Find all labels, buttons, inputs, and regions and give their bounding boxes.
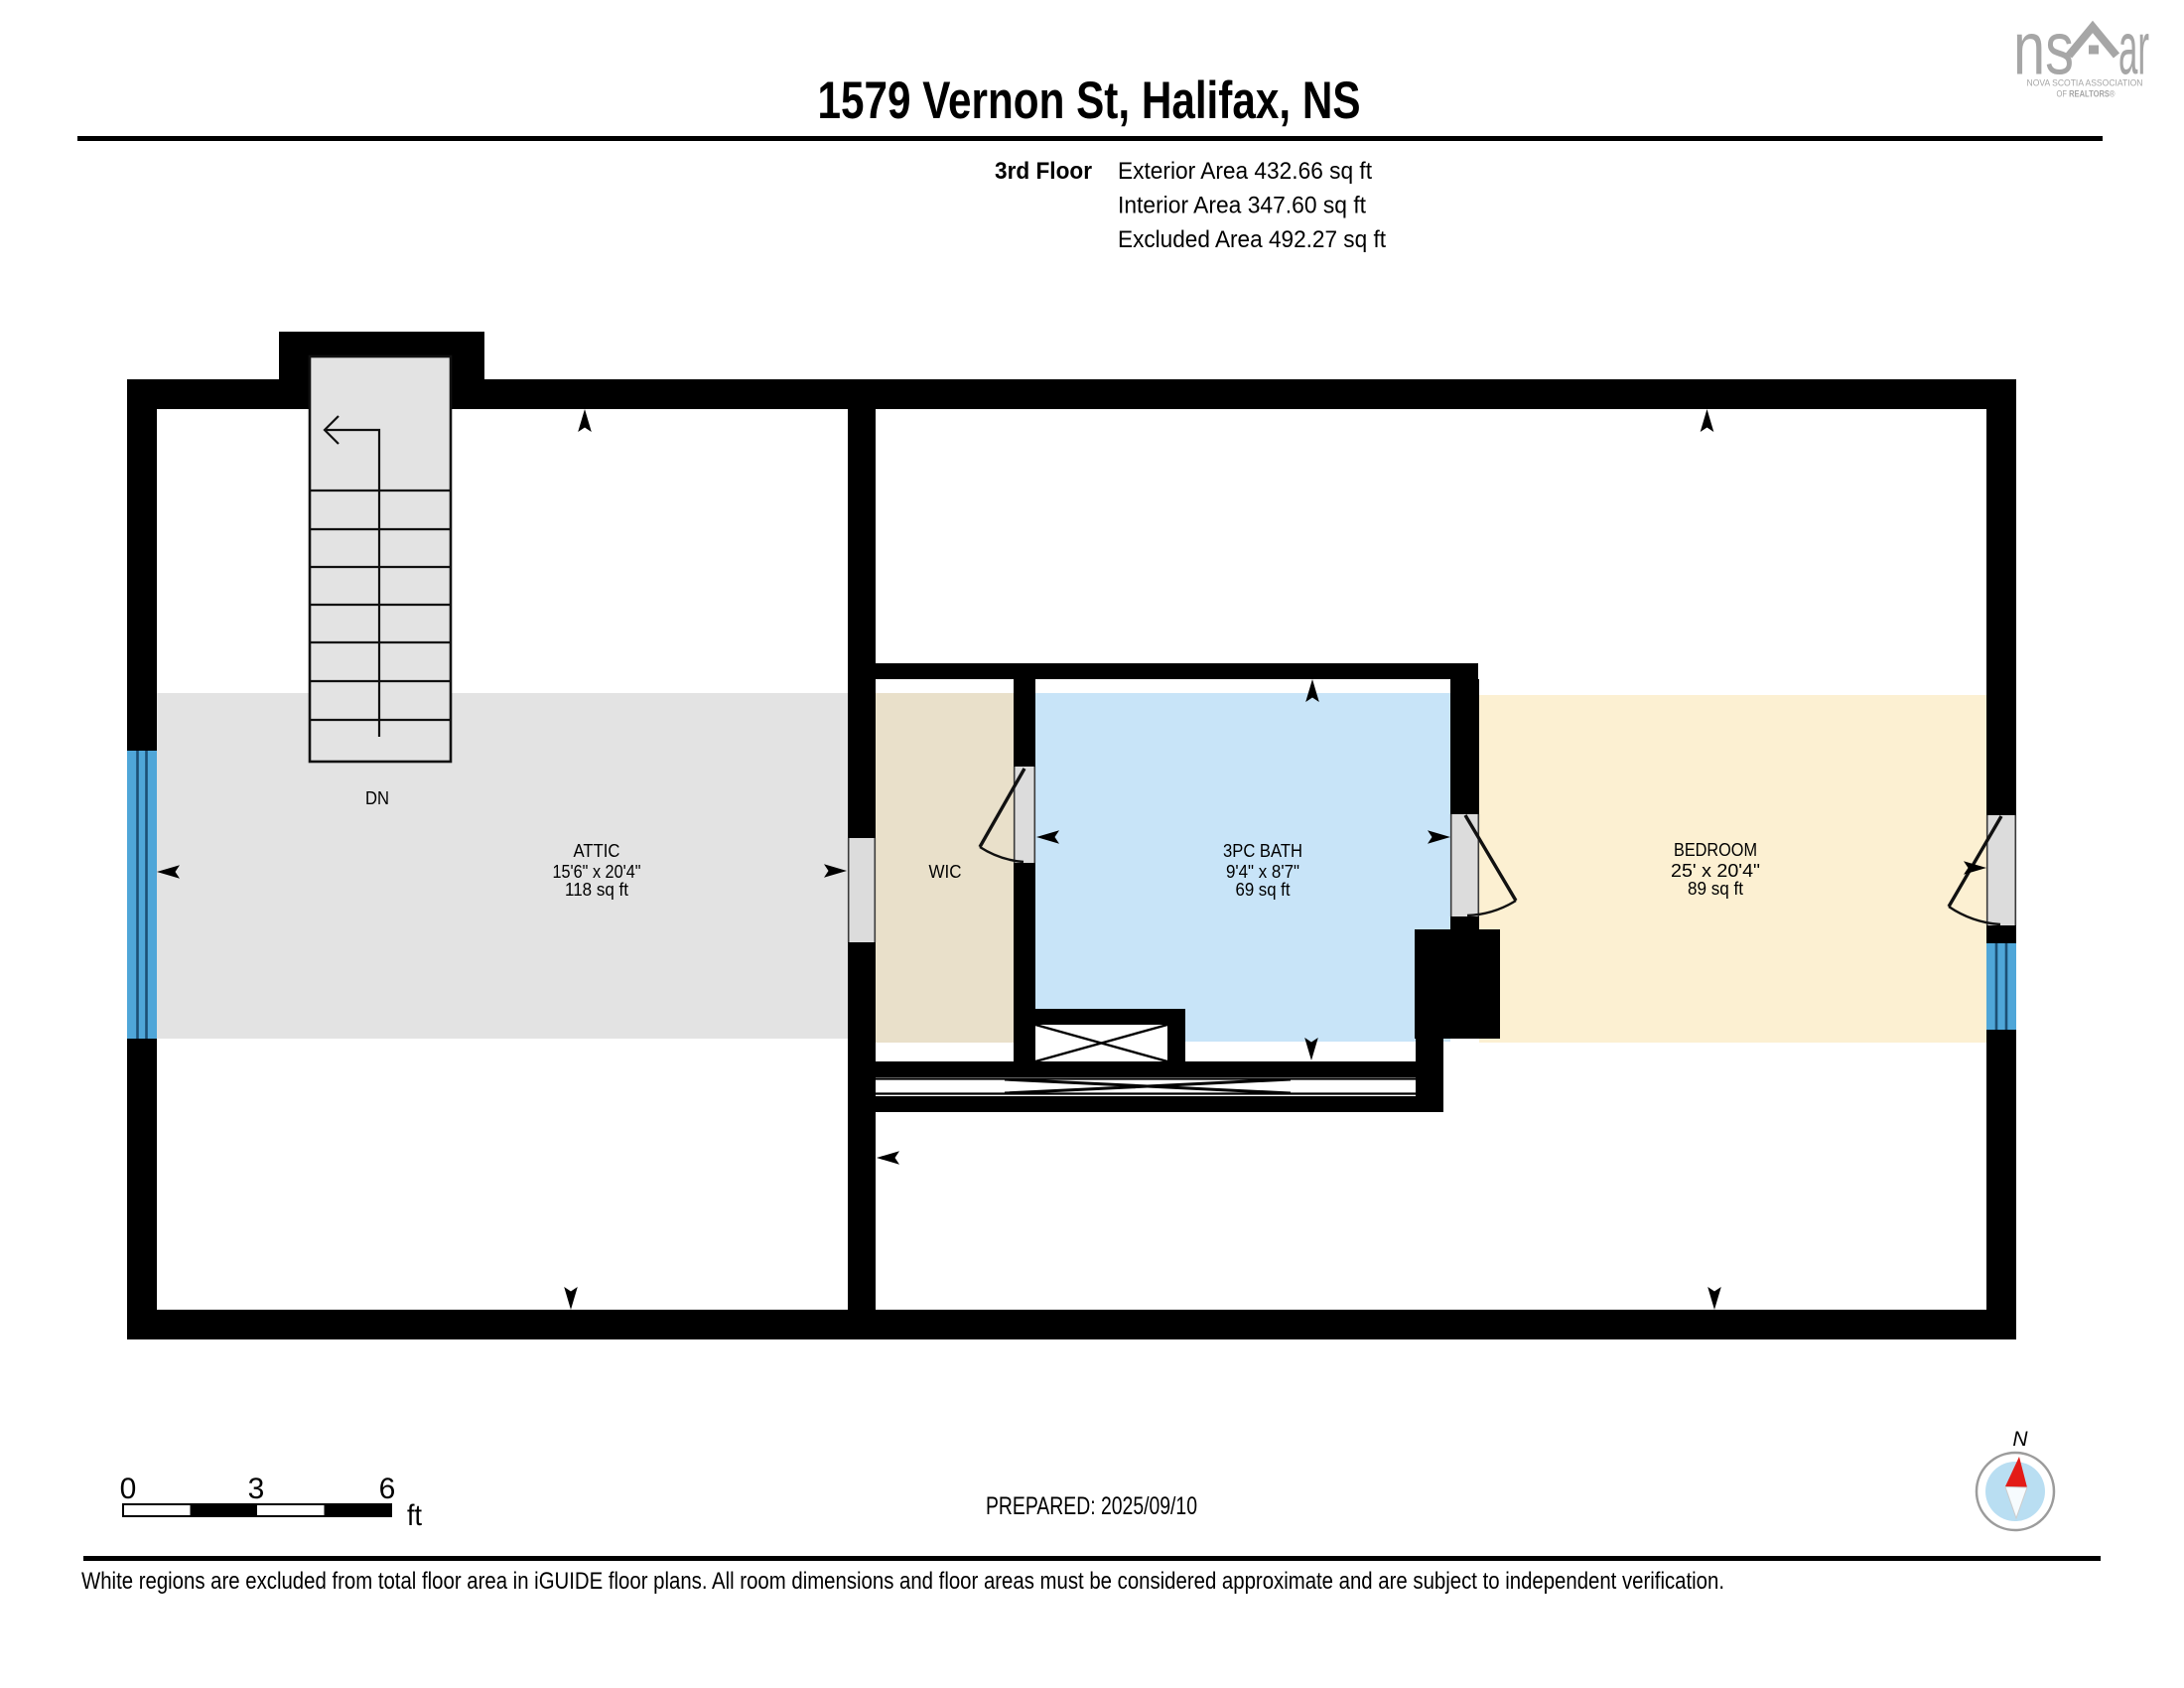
svg-text:6: 6 bbox=[379, 1473, 396, 1505]
svg-text:3: 3 bbox=[248, 1473, 265, 1505]
svg-text:3rd Floor: 3rd Floor bbox=[995, 158, 1092, 185]
svg-text:WIC: WIC bbox=[929, 861, 962, 882]
svg-text:ft: ft bbox=[407, 1499, 423, 1532]
svg-text:89 sq ft: 89 sq ft bbox=[1688, 878, 1743, 899]
svg-text:White regions are excluded fro: White regions are excluded from total fl… bbox=[81, 1568, 1724, 1595]
svg-text:ATTIC: ATTIC bbox=[574, 840, 620, 861]
svg-text:BEDROOM: BEDROOM bbox=[1674, 839, 1757, 860]
svg-text:3PC BATH: 3PC BATH bbox=[1223, 840, 1302, 861]
svg-text:OF REALTORS®: OF REALTORS® bbox=[2057, 89, 2116, 100]
svg-text:DN: DN bbox=[365, 788, 389, 808]
svg-text:0: 0 bbox=[120, 1473, 137, 1505]
svg-text:N: N bbox=[2012, 1428, 2028, 1451]
svg-text:1579 Vernon St, Halifax, NS: 1579 Vernon St, Halifax, NS bbox=[818, 71, 1361, 130]
svg-text:118 sq ft: 118 sq ft bbox=[565, 879, 628, 900]
svg-text:Interior Area 347.60 sq ft: Interior Area 347.60 sq ft bbox=[1118, 193, 1366, 219]
svg-text:PREPARED: 2025/09/10: PREPARED: 2025/09/10 bbox=[986, 1492, 1197, 1520]
svg-text:Excluded Area 492.27 sq ft: Excluded Area 492.27 sq ft bbox=[1118, 226, 1386, 253]
svg-text:69 sq ft: 69 sq ft bbox=[1236, 879, 1291, 900]
svg-text:Exterior Area 432.66 sq ft: Exterior Area 432.66 sq ft bbox=[1118, 158, 1372, 185]
svg-text:NOVA SCOTIA ASSOCIATION: NOVA SCOTIA ASSOCIATION bbox=[2027, 78, 2143, 89]
